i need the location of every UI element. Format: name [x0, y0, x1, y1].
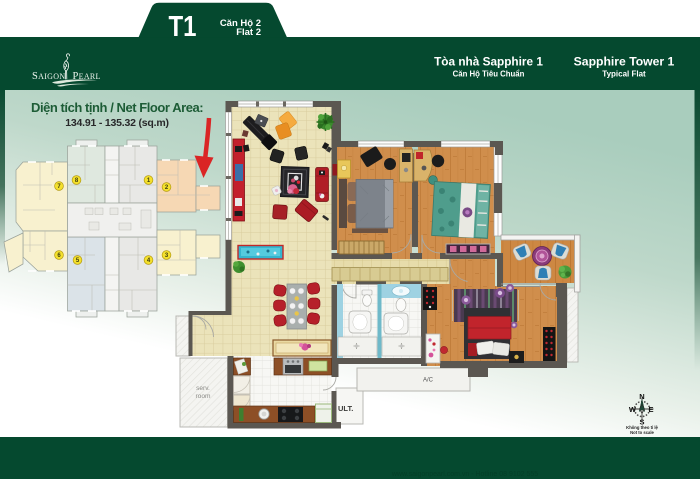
svg-text:134.91 - 135.32 (sq.m): 134.91 - 135.32 (sq.m) — [65, 117, 169, 129]
svg-text:E: E — [649, 405, 654, 414]
svg-text:Sapphire Tower 1: Sapphire Tower 1 — [574, 55, 675, 69]
svg-text:W: W — [629, 405, 637, 414]
svg-text:Typical Flat: Typical Flat — [602, 70, 646, 79]
svg-text:N: N — [639, 392, 644, 401]
svg-text:T1: T1 — [169, 11, 197, 43]
svg-text:A/C: A/C — [423, 378, 434, 384]
svg-text:Not to scale: Not to scale — [630, 430, 654, 435]
svg-text:Flat 2: Flat 2 — [236, 27, 261, 38]
svg-text:SAIGON: SAIGON — [32, 71, 65, 82]
svg-text:serv.: serv. — [196, 385, 210, 392]
svg-text:Tòa nhà Sapphire 1: Tòa nhà Sapphire 1 — [434, 55, 543, 69]
svg-text:room: room — [195, 393, 211, 400]
svg-text:ULT.: ULT. — [338, 404, 353, 413]
svg-text:Diện tích tịnh / Net Floor Are: Diện tích tịnh / Net Floor Area: — [31, 100, 203, 115]
svg-text:www.saigonpearl.com.vn - Hotli: www.saigonpearl.com.vn - Hotline 08 9102… — [391, 471, 538, 478]
svg-text:Căn Hộ Tiêu Chuẩn: Căn Hộ Tiêu Chuẩn — [453, 70, 525, 79]
